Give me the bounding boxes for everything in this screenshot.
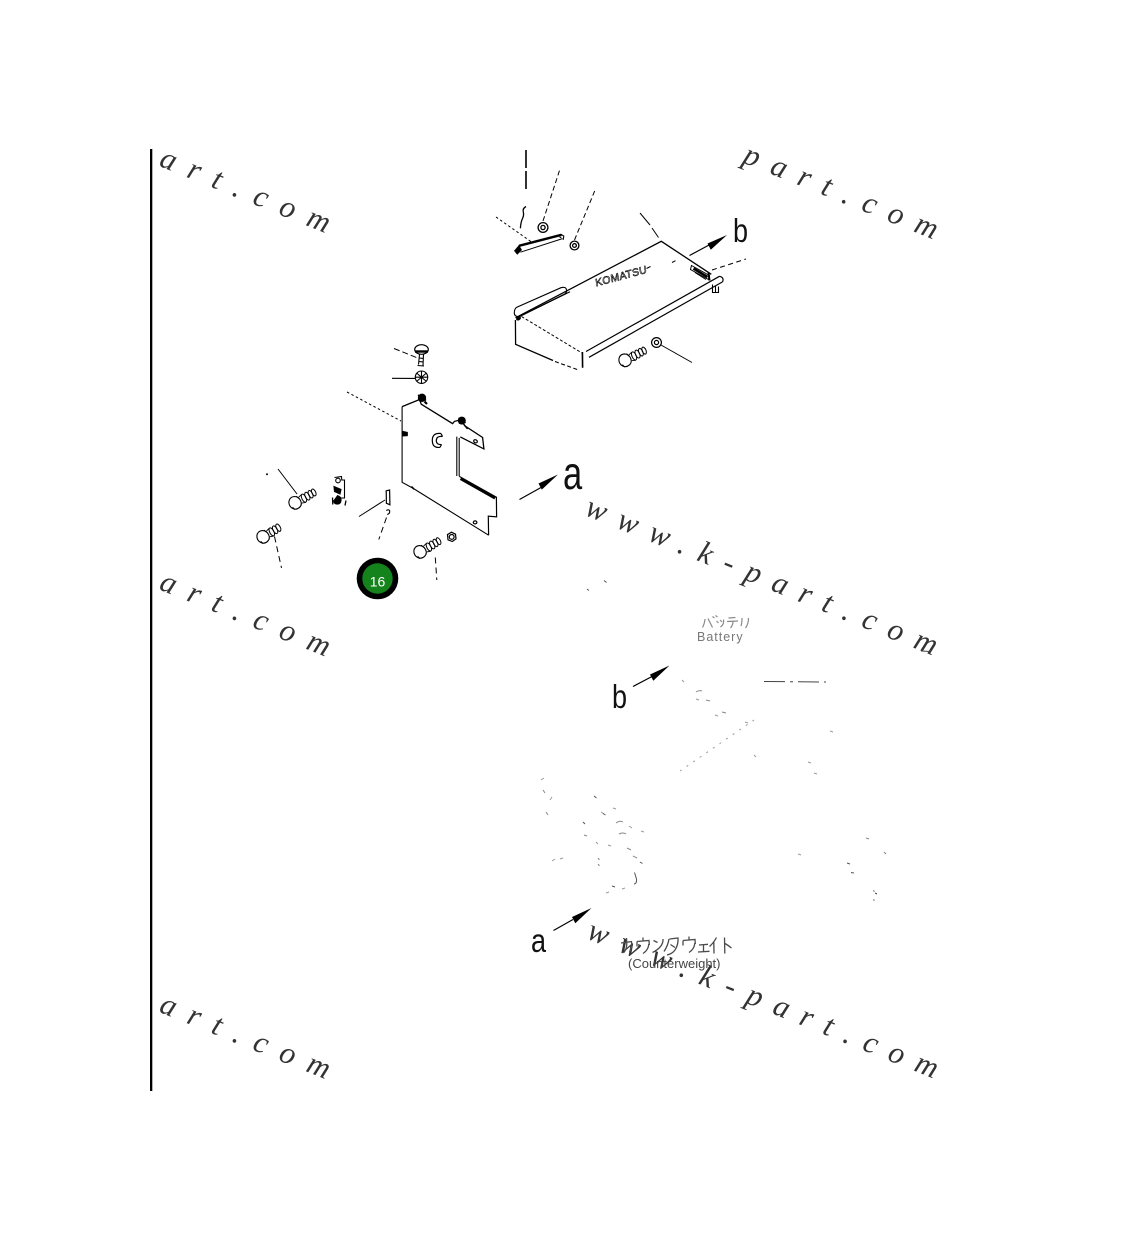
svg-text:b: b (612, 680, 627, 716)
svg-text:a: a (531, 924, 546, 960)
svg-text:b: b (733, 214, 748, 250)
svg-text:a: a (563, 447, 583, 499)
svg-text:(Counterweight): (Counterweight) (628, 956, 721, 971)
svg-text:16: 16 (370, 574, 386, 590)
svg-text:Battery: Battery (697, 630, 744, 644)
